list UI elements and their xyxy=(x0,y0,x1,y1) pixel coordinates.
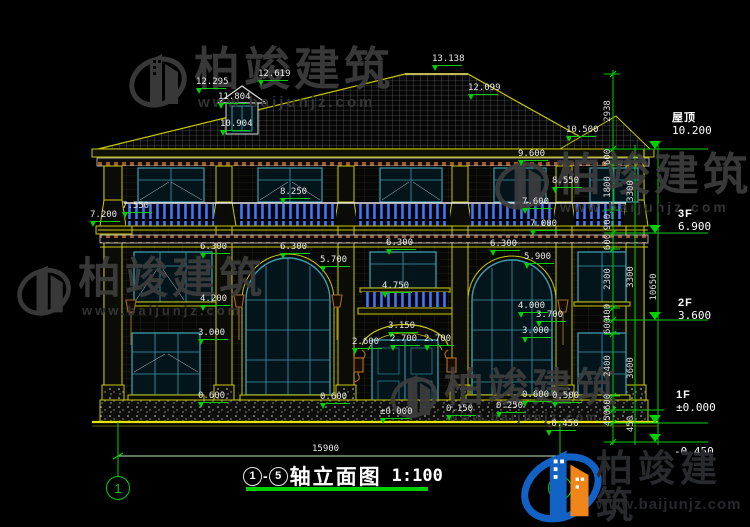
elevation-label: 7.600 xyxy=(522,198,552,214)
vertical-dimension-label: 600 xyxy=(603,234,613,250)
vertical-dimension-label: 2938 xyxy=(603,100,613,122)
title-dash: - xyxy=(263,468,268,484)
elevation-label: 2.700 xyxy=(424,335,454,351)
elevation-label: 3.700 xyxy=(536,311,566,327)
elevation-label: 6.300 xyxy=(200,243,230,259)
vertical-dimension-label: 450 xyxy=(603,410,613,426)
elevation-label: 12.619 xyxy=(258,70,291,86)
elevation-label: ±0.000 xyxy=(380,408,413,424)
title-axis-from-circle: 1 xyxy=(243,467,262,486)
elevation-label: 8.250 xyxy=(280,188,310,204)
elevation-label: 11.804 xyxy=(218,93,251,109)
level-marker: 2F 3.600 xyxy=(678,297,711,322)
vertical-dimension-label: 10650 xyxy=(649,273,659,300)
level-marker: 屋顶 10.200 xyxy=(672,112,712,137)
elevation-label: 0.150 xyxy=(446,405,476,421)
elevation-label: 0.500 xyxy=(552,392,582,408)
vertical-dimension-label: 2300 xyxy=(603,268,613,290)
axis-marker-1: 1 xyxy=(106,476,130,500)
elevation-label: 9.600 xyxy=(518,150,548,166)
elevation-label: 0.600 xyxy=(320,393,350,409)
elevation-label: 7.000 xyxy=(530,220,560,236)
elevation-label: 8.550 xyxy=(552,177,582,193)
vertical-dimension-label: 600 xyxy=(603,394,613,410)
title-axis-to-circle: 5 xyxy=(269,467,288,486)
vertical-dimension-label: 3300 xyxy=(626,180,636,202)
overall-dimension: 15900 xyxy=(312,444,339,454)
elevation-label: 10.500 xyxy=(566,126,599,142)
vertical-dimension-label: 600 xyxy=(603,149,613,165)
roof xyxy=(92,74,654,166)
axis-marker-1-label: 1 xyxy=(114,481,121,496)
elevation-label: 5.900 xyxy=(524,253,554,269)
elevation-label: 6.300 xyxy=(490,240,520,256)
vertical-dimension-label: 3600 xyxy=(626,357,636,379)
elevation-label: 7.200 xyxy=(90,211,120,227)
elevation-label: 0.600 xyxy=(198,392,228,408)
vertical-dimension-label: 600 xyxy=(603,318,613,334)
title-underline xyxy=(246,487,428,491)
elevation-label: 4.200 xyxy=(200,295,230,311)
vertical-dimension-label: 3300 xyxy=(626,266,636,288)
elevation-label: 6.300 xyxy=(280,243,310,259)
level-marker: 1F ±0.000 xyxy=(676,389,716,414)
vertical-dimension-label: 450 xyxy=(626,416,636,432)
logo-url: www.baijunjz.com xyxy=(596,496,741,513)
elevation-label: 3.000 xyxy=(198,329,228,345)
elevation-label: 13.138 xyxy=(432,55,465,71)
elevation-label: 0.250 xyxy=(496,402,526,418)
elevation-label: -0.450 xyxy=(546,420,579,436)
baijun-logo: 柏竣建筑 www.baijunjz.com xyxy=(500,440,750,527)
level-marker: 3F 6.900 xyxy=(678,208,711,233)
elevation-label: 4.750 xyxy=(382,282,412,298)
vertical-dimension-label: 1800 xyxy=(603,176,613,198)
vertical-dimension-label: 2400 xyxy=(603,355,613,377)
elevation-label: 0.600 xyxy=(522,391,552,407)
title-scale: 1:100 xyxy=(392,466,443,486)
elevation-label: 7.550 xyxy=(122,202,152,218)
elevation-label: 2.600 xyxy=(352,338,382,354)
elevation-label: 6.300 xyxy=(386,239,416,255)
elevation-label: 5.700 xyxy=(320,256,350,272)
elevation-label: 10.904 xyxy=(220,120,253,136)
elevation-label: 12.099 xyxy=(468,84,501,100)
elevation-label: 3.000 xyxy=(522,327,552,343)
cad-elevation-screenshot: 柏竣建筑 www.baijunjz.com 柏竣建筑 www.baijunjz.… xyxy=(0,0,750,527)
vertical-dimension-label: 900 xyxy=(603,214,613,230)
elevation-label: 2.700 xyxy=(390,335,420,351)
